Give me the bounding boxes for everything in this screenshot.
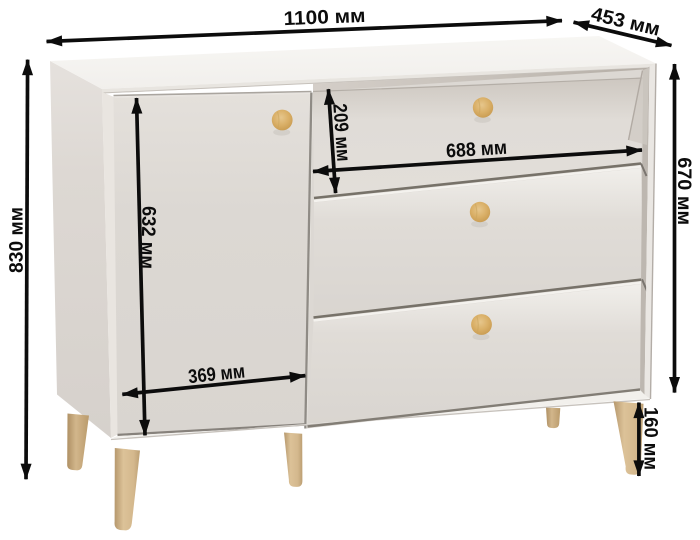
svg-text:160 мм: 160 мм: [639, 407, 661, 470]
svg-text:670 мм: 670 мм: [673, 157, 695, 225]
svg-text:688 мм: 688 мм: [445, 137, 507, 163]
svg-text:1100 мм: 1100 мм: [283, 5, 366, 30]
svg-text:632 мм: 632 мм: [136, 206, 160, 270]
svg-text:830 мм: 830 мм: [5, 207, 27, 273]
svg-text:209 мм: 209 мм: [328, 103, 354, 162]
